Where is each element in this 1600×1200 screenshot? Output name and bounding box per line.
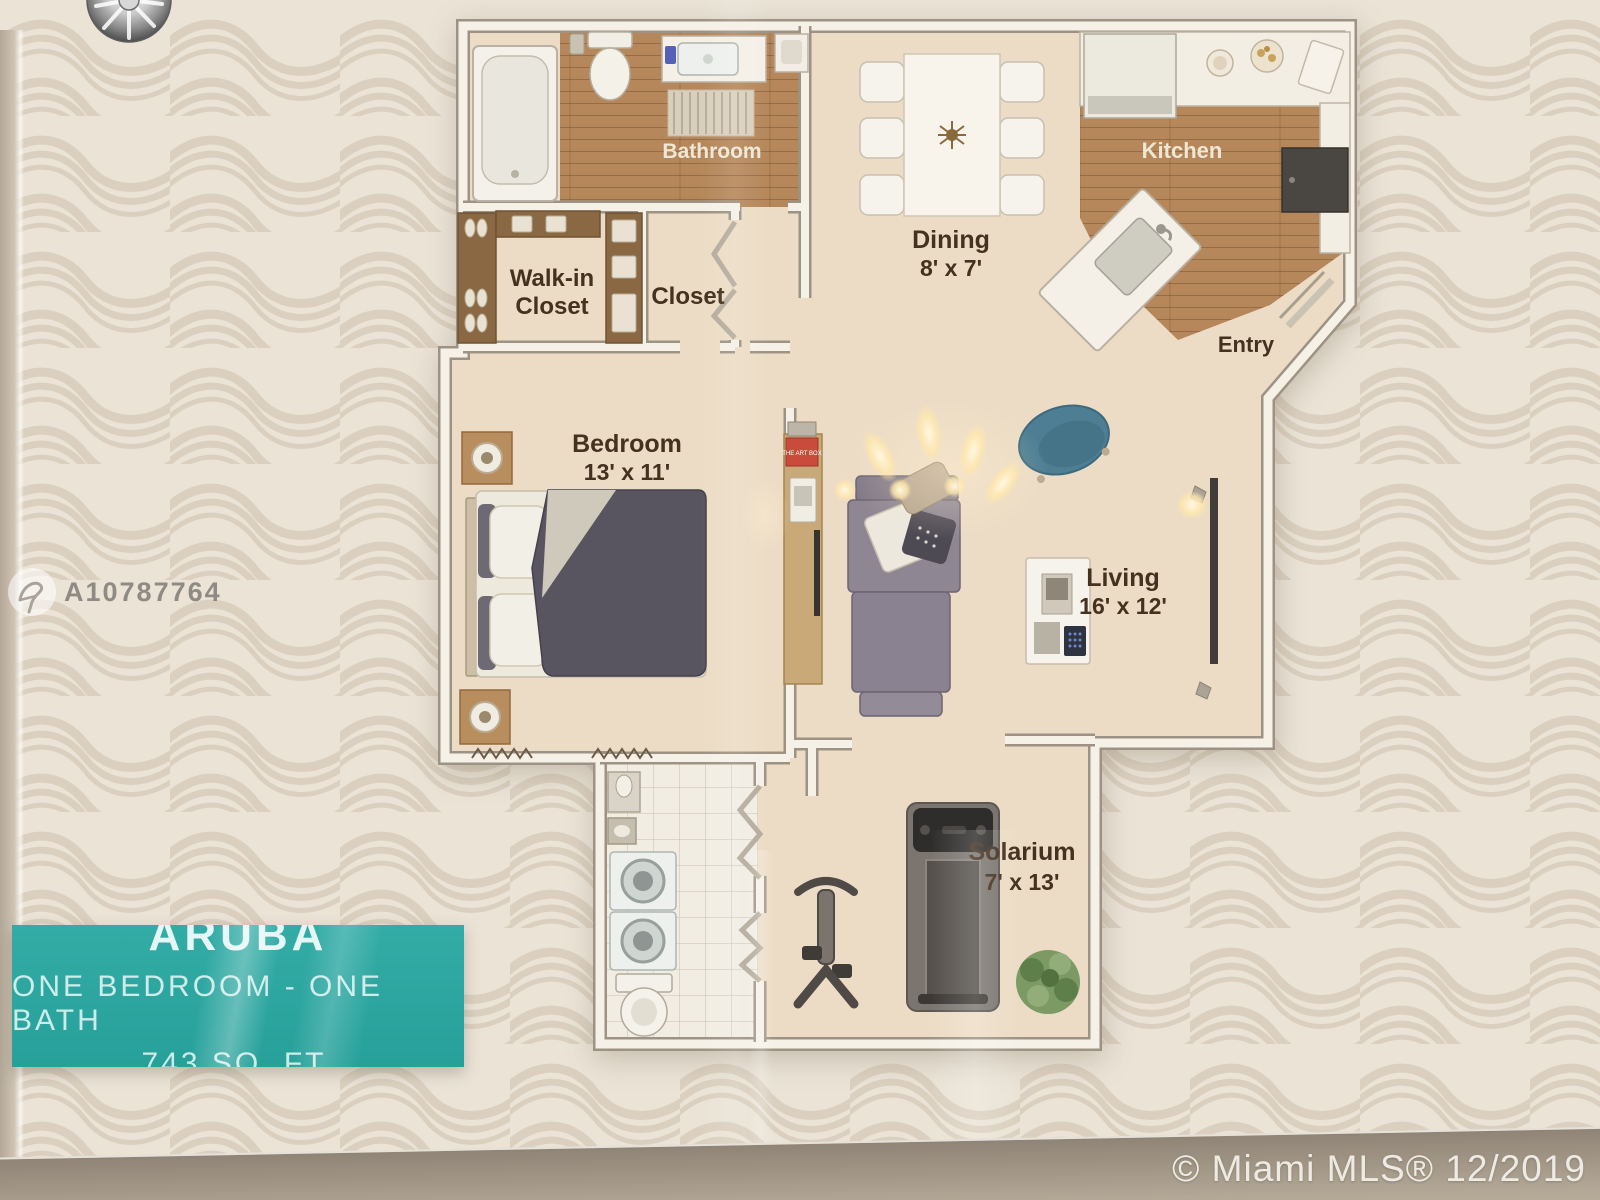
mounting-standoff [84,0,174,44]
showroom-photo: THE ART BOX [0,0,1600,1200]
tray-item [1251,40,1283,72]
bath-rug [668,90,754,136]
label-closet: Closet [651,283,724,310]
label-bedroom: Bedroom [572,430,682,458]
nightstand-bottom [460,690,510,744]
label-walkin-1: Walk-in [510,265,594,292]
mls-watermark: A10787764 [6,566,222,618]
bathtub [473,46,557,201]
refrigerator-door [1088,96,1172,114]
gray-book [1034,622,1060,654]
console-desk: THE ART BOX [782,422,822,684]
label-dining: Dining [912,226,990,254]
unit-area: 743 SQ. FT. [141,1047,334,1067]
unit-config: ONE BEDROOM - ONE BATH [12,970,464,1038]
dining-set [860,54,1044,216]
treadmill [907,803,999,1011]
label-walkin-2: Closet [515,293,588,320]
label-living: Living [1086,564,1160,592]
label-bathroom: Bathroom [662,140,761,163]
watermark-id: A10787764 [64,577,222,608]
flamingo-icon [6,566,58,618]
bed [466,490,706,677]
laundry-shelf [608,772,640,844]
shower-shelf [775,34,808,72]
label-entry: Entry [1218,332,1275,357]
wall-tv [1210,478,1218,664]
label-kitchen: Kitchen [1142,138,1223,163]
nightstand-top [462,432,512,484]
kitchen-counter-top [1080,32,1350,118]
console-tv [814,530,820,616]
art-book-label: THE ART BOX [782,451,821,457]
sectional-sofa [848,459,960,716]
treadmill-belt [926,860,980,996]
label-solarium-dims: 7' x 13' [985,869,1060,895]
label-bedroom-dims: 13' x 11' [584,459,670,485]
mls-credit: © Miami MLS® 12/2019 [1172,1148,1586,1190]
label-dining-dims: 8' x 7' [920,255,982,281]
label-living-dims: 16' x 12' [1079,593,1167,619]
floor-plan: THE ART BOX [420,8,1370,1063]
unit-plaque: ARUBA ONE BEDROOM - ONE BATH 743 SQ. FT. [12,925,464,1067]
soap-item [665,46,676,64]
bathroom-vanity [662,36,766,82]
unit-name: ARUBA [149,925,328,961]
potted-plant [1016,950,1080,1014]
label-solarium: Solarium [969,838,1076,866]
